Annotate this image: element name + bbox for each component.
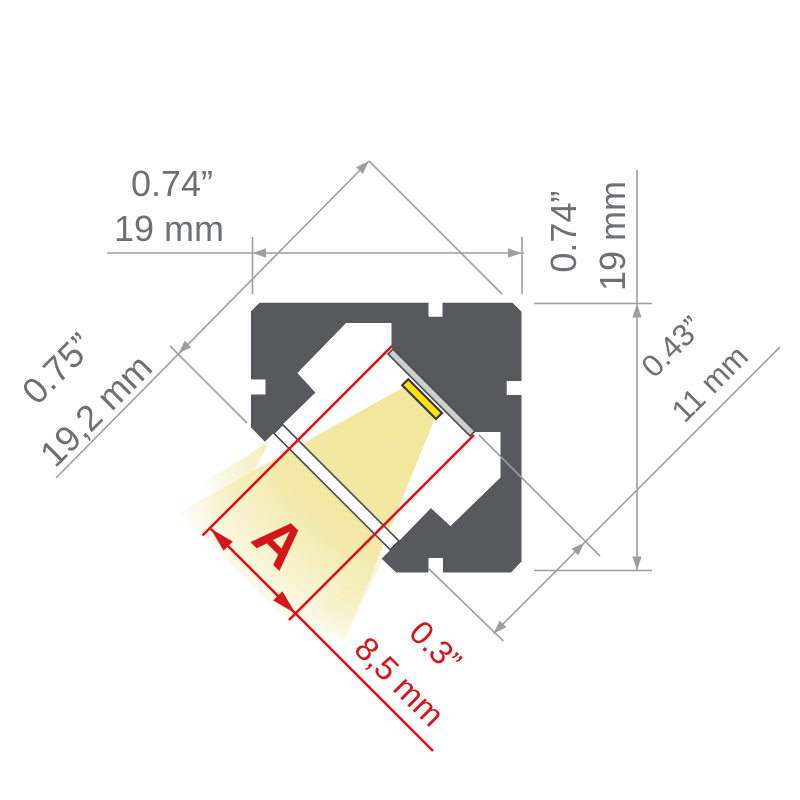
svg-text:0.74”: 0.74” [131,163,213,204]
svg-text:19 mm: 19 mm [114,208,224,249]
svg-text:19 mm: 19 mm [592,181,633,291]
svg-text:0.74”: 0.74” [543,191,584,273]
